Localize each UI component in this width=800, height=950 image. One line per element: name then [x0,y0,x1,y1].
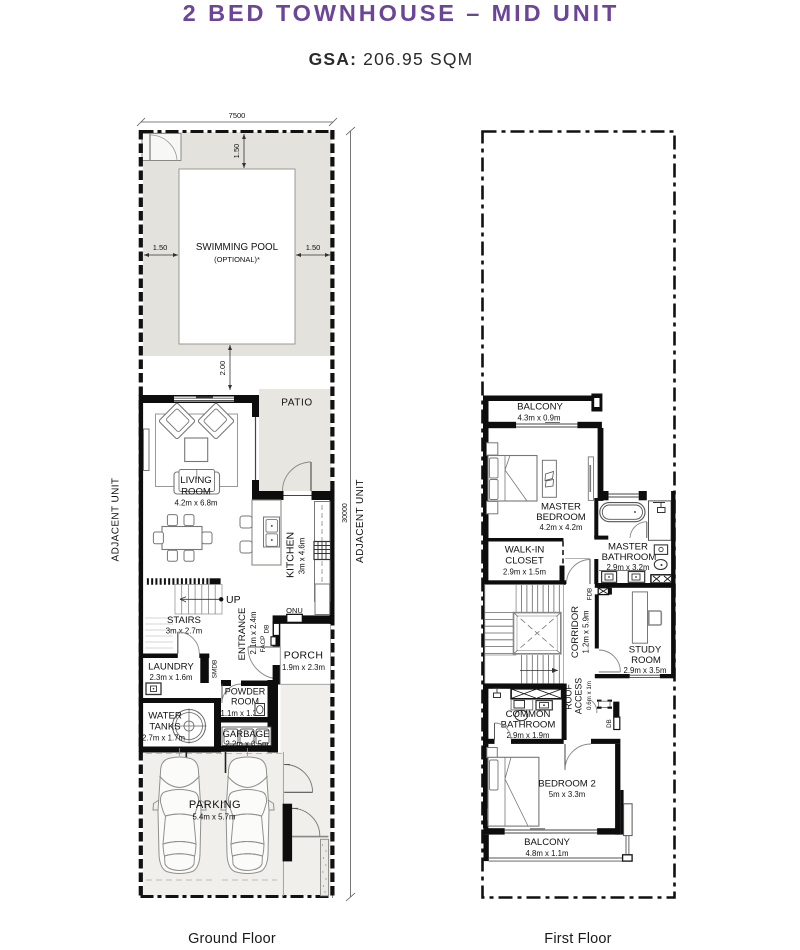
svg-text:1.9m x 2.3m: 1.9m x 2.3m [282,663,325,672]
svg-text:BALCONY: BALCONY [524,837,570,848]
svg-text:WATER: WATER [148,711,182,722]
svg-text:3m x 4.6m: 3m x 4.6m [298,538,307,574]
svg-text:1.50: 1.50 [306,243,321,252]
svg-text:30000: 30000 [342,503,349,523]
svg-text:1.50: 1.50 [153,243,168,252]
svg-text:TANKS: TANKS [149,722,180,733]
svg-text:DB: DB [264,624,271,633]
svg-text:CLOSET: CLOSET [505,556,544,567]
svg-text:CORRIDOR: CORRIDOR [570,606,581,658]
svg-text:POWDER: POWDER [225,687,266,697]
svg-text:UP: UP [226,594,241,606]
svg-text:2.9m x 1.5m: 2.9m x 1.5m [503,568,546,577]
svg-text:BATHROOM: BATHROOM [501,720,556,731]
svg-text:ENTRANCE: ENTRANCE [237,608,248,661]
svg-text:FACP: FACP [260,636,267,653]
svg-text:FDB: FDB [587,588,594,600]
svg-text:2.9m x 3.5m: 2.9m x 3.5m [624,666,667,675]
svg-text:4.8m x 1.1m: 4.8m x 1.1m [526,849,569,858]
svg-text:COMMON: COMMON [506,709,551,720]
svg-text:PARKING: PARKING [189,799,241,811]
svg-text:MASTER: MASTER [541,502,581,513]
svg-text:PORCH: PORCH [284,650,323,662]
svg-text:Ground Floor: Ground Floor [188,931,276,947]
svg-text:5.4m x 5.7m: 5.4m x 5.7m [193,813,236,822]
svg-text:2.9m x 1.9m: 2.9m x 1.9m [507,731,550,740]
svg-text:1.2m x 5.9m: 1.2m x 5.9m [582,611,591,654]
svg-text:4.3m x 0.9m: 4.3m x 0.9m [518,414,561,423]
svg-text:1.50: 1.50 [232,144,241,159]
svg-text:0.6m x 1m: 0.6m x 1m [586,681,593,710]
svg-text:STAIRS: STAIRS [167,615,201,626]
svg-text:ROOM: ROOM [181,487,211,498]
svg-text:5m x 3.3m: 5m x 3.3m [549,790,585,799]
svg-text:ADJACENT UNIT: ADJACENT UNIT [111,478,122,562]
svg-text:ADJACENT UNIT: ADJACENT UNIT [355,479,366,563]
svg-text:DB: DB [606,719,613,728]
svg-text:First Floor: First Floor [544,931,611,947]
svg-text:4.2m x 4.2m: 4.2m x 4.2m [540,523,583,532]
svg-text:SWIMMING POOL: SWIMMING POOL [196,242,279,253]
svg-text:STUDY: STUDY [629,645,662,656]
svg-text:PATIO: PATIO [281,398,313,409]
svg-text:ROOM: ROOM [631,655,661,666]
svg-text:BATHROOM: BATHROOM [602,552,657,563]
svg-text:2.2m x 0.5m: 2.2m x 0.5m [226,739,269,748]
svg-text:WALK-IN: WALK-IN [505,545,545,556]
svg-text:ACCESS: ACCESS [574,678,584,714]
svg-text:7500: 7500 [229,111,246,120]
svg-text:2.1m x 2.4m: 2.1m x 2.4m [249,612,258,655]
svg-text:LAUNDRY: LAUNDRY [148,662,194,673]
svg-text:KITCHEN: KITCHEN [285,532,297,578]
svg-text:(OPTIONAL)*: (OPTIONAL)* [214,255,260,264]
svg-text:3m x 2.7m: 3m x 2.7m [166,627,202,636]
svg-text:SMDB: SMDB [212,660,219,679]
svg-text:ONU: ONU [286,606,303,615]
svg-text:LIVING: LIVING [180,475,211,486]
svg-text:2.3m x 1.6m: 2.3m x 1.6m [150,673,193,682]
svg-text:BEDROOM: BEDROOM [536,512,586,523]
svg-text:4.2m x 6.8m: 4.2m x 6.8m [175,499,218,508]
svg-text:2.00: 2.00 [218,361,227,376]
svg-text:2.7m x 1.7m: 2.7m x 1.7m [142,734,185,743]
svg-text:BALCONY: BALCONY [517,402,563,413]
svg-text:BEDROOM 2: BEDROOM 2 [538,779,596,790]
